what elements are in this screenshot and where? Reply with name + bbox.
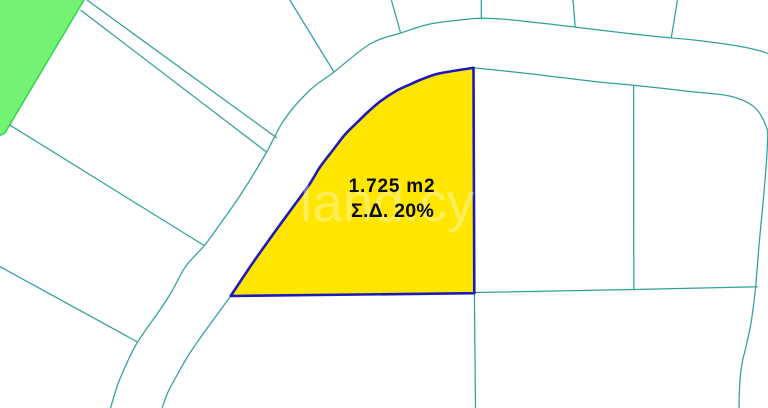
svg-text:Σ.Δ. 20%: Σ.Δ. 20% — [351, 200, 434, 222]
svg-text:1.725 m2: 1.725 m2 — [349, 176, 436, 197]
